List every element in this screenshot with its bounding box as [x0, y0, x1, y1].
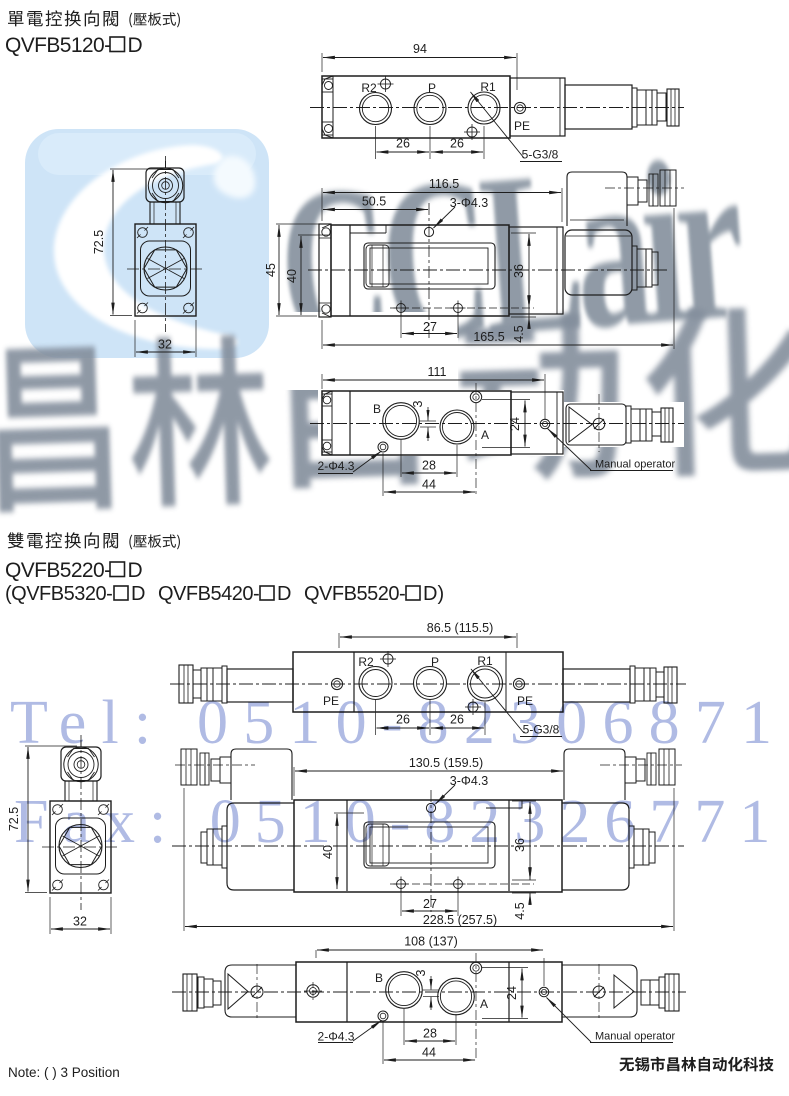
svg-text:A: A [480, 997, 488, 1011]
svg-text:B: B [375, 971, 383, 985]
svg-text:R1: R1 [477, 654, 493, 668]
svg-text:32: 32 [158, 338, 172, 352]
svg-text:R1: R1 [480, 80, 496, 94]
svg-text:26: 26 [396, 137, 410, 151]
svg-text:QVFB5520-: QVFB5520- [304, 583, 405, 605]
svg-text:QVFB5220-: QVFB5220- [5, 559, 111, 582]
svg-text:24: 24 [508, 417, 522, 431]
svg-text:36: 36 [512, 264, 526, 278]
svg-text:Manual operator: Manual operator [595, 1031, 675, 1043]
svg-text:D: D [131, 583, 145, 605]
svg-text:D: D [128, 559, 143, 582]
svg-text:116.5: 116.5 [429, 177, 459, 191]
svg-text:3-Φ4.3: 3-Φ4.3 [450, 774, 489, 788]
svg-text:QVFB5120-: QVFB5120- [5, 34, 111, 57]
svg-text:27: 27 [423, 320, 437, 334]
svg-text:26: 26 [450, 137, 464, 151]
svg-text:Manual operator: Manual operator [595, 459, 675, 471]
svg-text:4.5: 4.5 [512, 325, 526, 342]
svg-text:130.5 (159.5): 130.5 (159.5) [409, 756, 483, 770]
svg-text:4.5: 4.5 [513, 902, 527, 919]
svg-text:44: 44 [422, 478, 436, 492]
svg-text:P: P [428, 81, 436, 95]
svg-text:R2: R2 [358, 655, 374, 669]
svg-text:A: A [481, 428, 489, 442]
svg-text:D): D) [423, 583, 444, 605]
svg-text:D: D [128, 34, 143, 57]
svg-text:94: 94 [413, 42, 427, 56]
svg-text:PE: PE [514, 119, 530, 133]
svg-text:Fax: 0510-82326771: Fax: 0510-82326771 [14, 788, 784, 856]
svg-text:44: 44 [422, 1046, 436, 1060]
svg-text:P: P [431, 655, 439, 669]
svg-text:228.5 (257.5): 228.5 (257.5) [423, 913, 497, 927]
svg-text:24: 24 [505, 986, 519, 1000]
svg-text:111: 111 [427, 365, 446, 379]
svg-text:QVFB5420-: QVFB5420- [158, 583, 259, 605]
svg-text:D: D [277, 583, 291, 605]
svg-text:3-Φ4.3: 3-Φ4.3 [450, 196, 489, 210]
svg-text:Tel: 0510-82306871: Tel: 0510-82306871 [10, 689, 787, 757]
svg-text:(QVFB5320-: (QVFB5320- [5, 583, 112, 605]
svg-text:28: 28 [423, 1027, 437, 1041]
svg-text:B: B [373, 402, 381, 416]
svg-text:2-Φ4.3: 2-Φ4.3 [318, 1030, 355, 1044]
svg-text:86.5 (115.5): 86.5 (115.5) [427, 621, 493, 635]
svg-text:72.5: 72.5 [92, 230, 106, 254]
svg-text:28: 28 [422, 459, 436, 473]
svg-text:108 (137): 108 (137) [404, 935, 458, 949]
svg-text:5-G3/8: 5-G3/8 [522, 148, 559, 162]
svg-text:27: 27 [423, 897, 437, 911]
svg-text:2-Φ4.3: 2-Φ4.3 [318, 459, 355, 473]
svg-text:40: 40 [285, 269, 299, 283]
svg-text:32: 32 [73, 915, 87, 929]
svg-text:R2: R2 [361, 81, 377, 95]
svg-text:Note: ( ) 3 Position: Note: ( ) 3 Position [8, 1065, 120, 1080]
svg-text:3: 3 [411, 400, 425, 407]
svg-text:165.5: 165.5 [473, 330, 504, 344]
svg-text:45: 45 [264, 263, 278, 277]
svg-text:3: 3 [414, 969, 428, 976]
svg-text:50.5: 50.5 [362, 195, 386, 209]
